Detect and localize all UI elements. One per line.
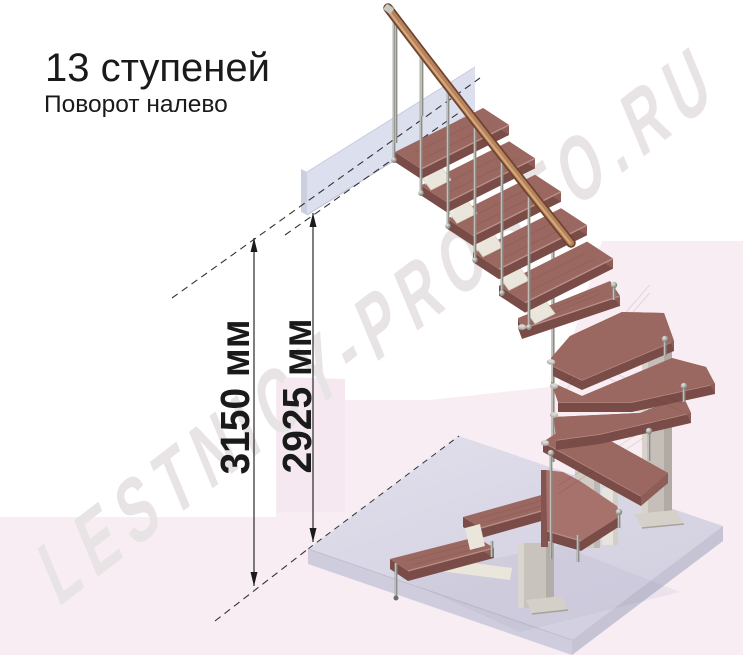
svg-text:3150 мм: 3150 мм <box>213 319 258 474</box>
svg-text:13 ступеней: 13 ступеней <box>45 46 270 90</box>
svg-text:Поворот налево: Поворот налево <box>44 91 228 118</box>
svg-text:2925 мм: 2925 мм <box>275 318 320 473</box>
